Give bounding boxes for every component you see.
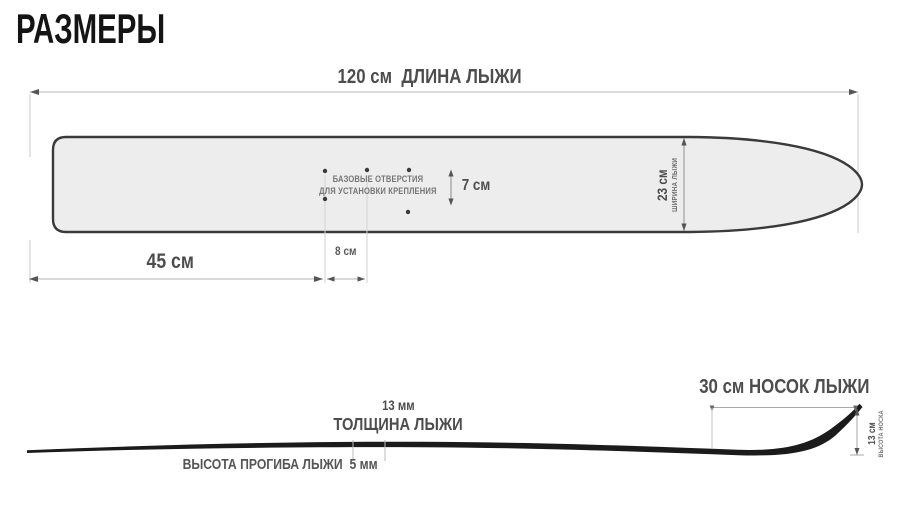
d45-arrow-right: [314, 276, 323, 282]
holes-gap-dimension-label: 7 см: [459, 177, 493, 195]
length-arrow-right: [849, 89, 858, 95]
tail-to-holes-dimension-label: 45 см: [70, 250, 270, 274]
camber-height-label: ВЫСОТА ПРОГИБА ЛЫЖИ 5 мм: [155, 457, 405, 473]
page-title: РАЗМЕРЫ: [16, 6, 229, 52]
tip-height-arrow-down: [855, 448, 860, 455]
d8-arrow-left: [327, 276, 335, 281]
binding-hole: [365, 168, 369, 172]
length-arrow-left: [30, 89, 39, 95]
d8-arrow-right: [358, 276, 366, 281]
hole-spacing-dimension-label: 8 см: [316, 244, 376, 258]
binding-hole: [407, 168, 411, 172]
binding-holes-note: БАЗОВЫЕ ОТВЕРСТИЯ ДЛЯ УСТАНОВКИ КРЕПЛЕНИ…: [290, 173, 465, 197]
width-dimension-label: 23 см ШИРИНА ЛЫЖИ: [654, 135, 684, 235]
thickness-dimension-label: 13 мм ТОЛЩИНА ЛЫЖИ: [318, 398, 478, 434]
tip-length-dimension-label: 30 см НОСОК ЛЫЖИ: [683, 376, 883, 399]
binding-hole: [323, 197, 327, 201]
ski-dimensions-diagram: РАЗМЕРЫ 120 см ДЛИНА ЛЫЖИ БАЗОВЫЕ ОТВЕРС…: [0, 0, 900, 514]
length-dimension-label: 120 см ДЛИНА ЛЫЖИ: [130, 66, 730, 89]
binding-hole: [406, 210, 410, 214]
tip-height-dimension-label: 13 см ВЫСОТА НОСКА: [867, 406, 889, 462]
